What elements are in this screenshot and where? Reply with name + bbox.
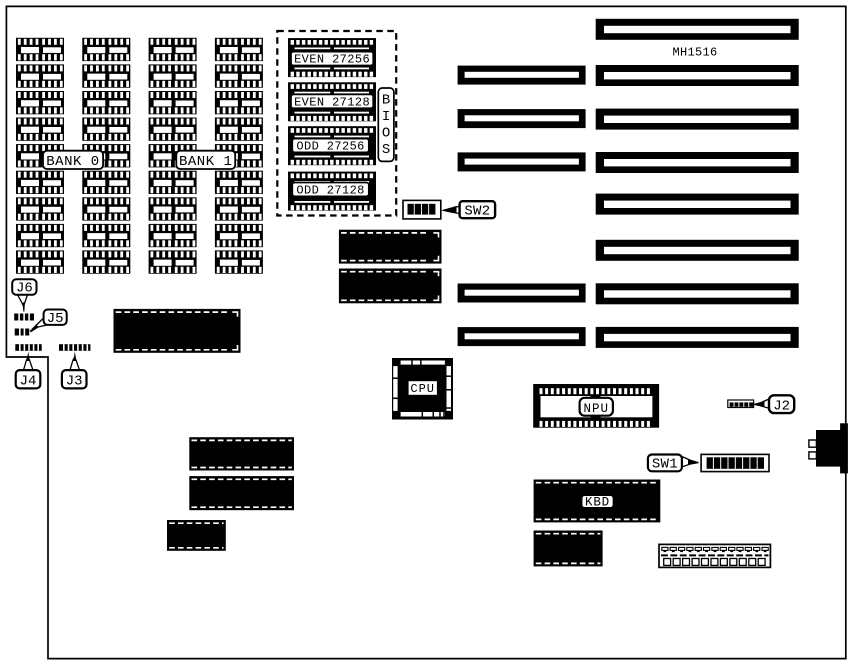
svg-text:SW1: SW1 <box>652 457 678 473</box>
svg-text:J5: J5 <box>47 311 64 327</box>
svg-text:BANK 1: BANK 1 <box>179 154 232 170</box>
svg-text:ODD 27128: ODD 27128 <box>296 184 364 198</box>
svg-text:ODD 27256: ODD 27256 <box>296 140 364 154</box>
svg-text:B: B <box>382 93 390 109</box>
svg-text:KBD: KBD <box>585 496 610 510</box>
svg-text:S: S <box>382 142 390 158</box>
svg-text:BANK 0: BANK 0 <box>46 154 99 170</box>
svg-text:I: I <box>382 109 390 125</box>
svg-text:J6: J6 <box>16 281 33 297</box>
svg-text:MH1516: MH1516 <box>672 46 717 60</box>
svg-text:O: O <box>382 126 390 142</box>
svg-text:J2: J2 <box>773 398 790 414</box>
svg-text:EVEN 27256: EVEN 27256 <box>294 53 370 67</box>
svg-text:CPU: CPU <box>410 382 435 396</box>
svg-text:EVEN 27128: EVEN 27128 <box>294 95 370 109</box>
svg-text:J3: J3 <box>66 374 83 390</box>
svg-text:SW2: SW2 <box>464 203 490 219</box>
svg-text:NPU: NPU <box>583 402 609 416</box>
svg-text:J4: J4 <box>20 374 37 390</box>
